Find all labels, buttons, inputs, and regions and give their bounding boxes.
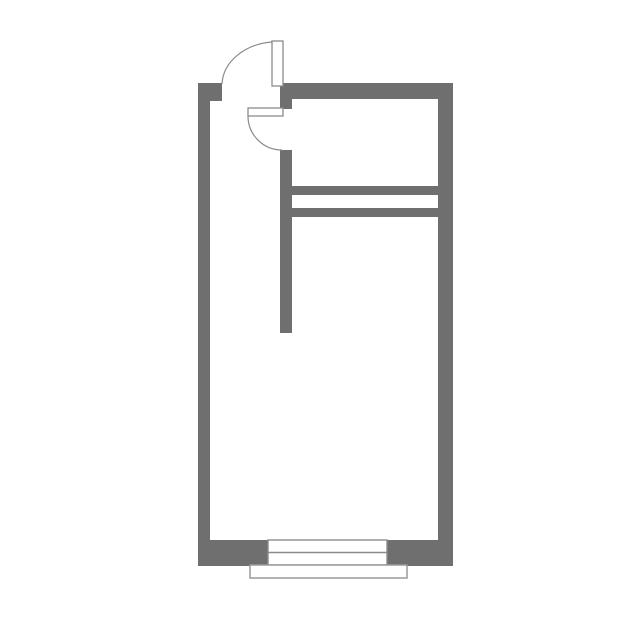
entry-door-swing-arc <box>222 42 272 84</box>
left-wall <box>198 83 210 566</box>
entry-door-jamb <box>210 83 222 101</box>
bottom-wall-left <box>198 540 268 566</box>
bottom-wall-right <box>387 540 453 566</box>
floorplan-svg <box>0 0 644 635</box>
closet-wall-upper <box>292 186 438 195</box>
entry-door-leaf <box>272 41 283 86</box>
partition-wall <box>280 150 292 333</box>
walls-layer <box>198 83 453 566</box>
closet-wall-lower <box>292 208 438 217</box>
top-wall <box>280 83 453 99</box>
floorplan-page <box>0 0 644 635</box>
openings-layer <box>250 540 407 578</box>
doors-layer <box>222 41 283 150</box>
window-sill <box>250 565 407 578</box>
interior-door-leaf <box>248 108 283 116</box>
interior-door-swing-arc <box>248 116 282 150</box>
right-wall <box>438 83 453 566</box>
